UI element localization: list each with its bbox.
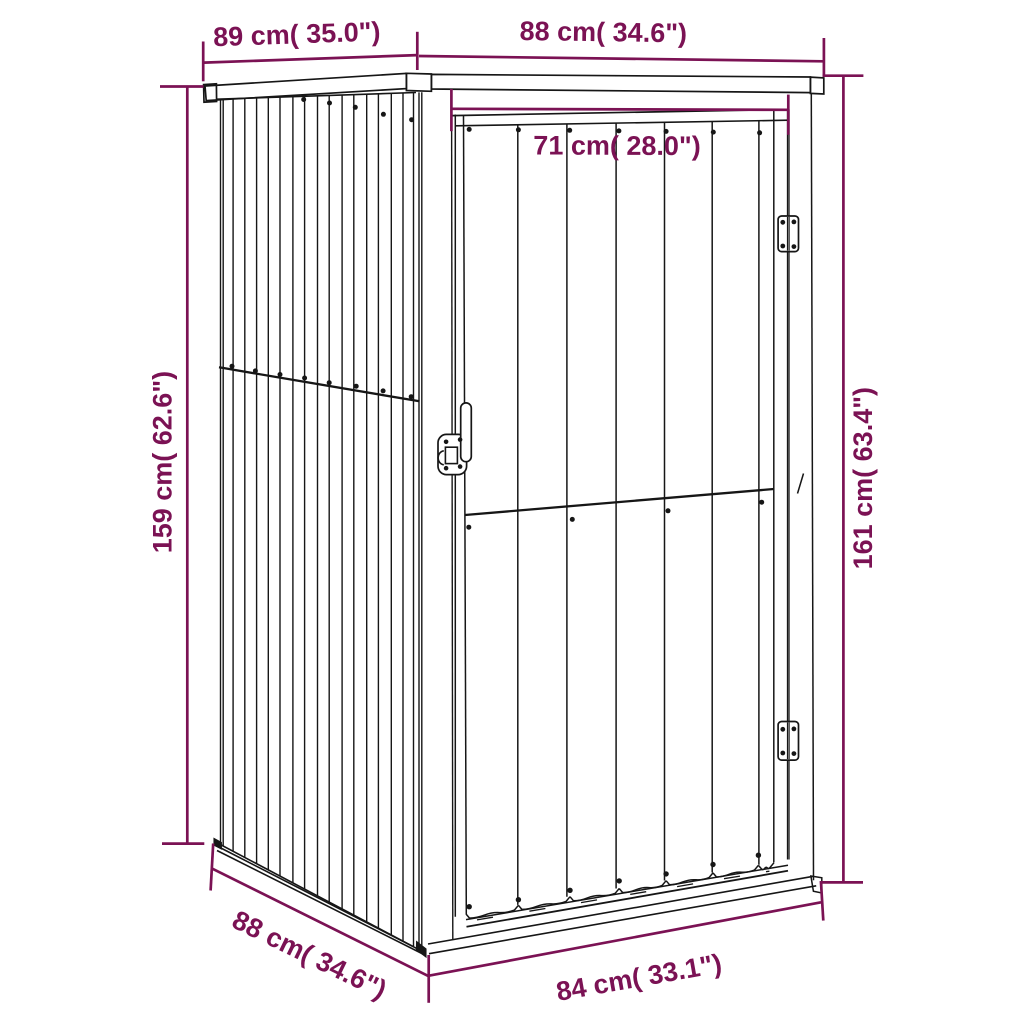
svg-text:71 cm( 28.0"): 71 cm( 28.0") xyxy=(533,131,701,162)
svg-text:88 cm( 34.6"): 88 cm( 34.6") xyxy=(519,16,687,48)
svg-text:159 cm( 62.6"): 159 cm( 62.6") xyxy=(148,371,178,553)
svg-text:89 cm( 35.0"): 89 cm( 35.0") xyxy=(213,16,381,52)
svg-text:161 cm( 63.4"): 161 cm( 63.4") xyxy=(848,387,878,569)
